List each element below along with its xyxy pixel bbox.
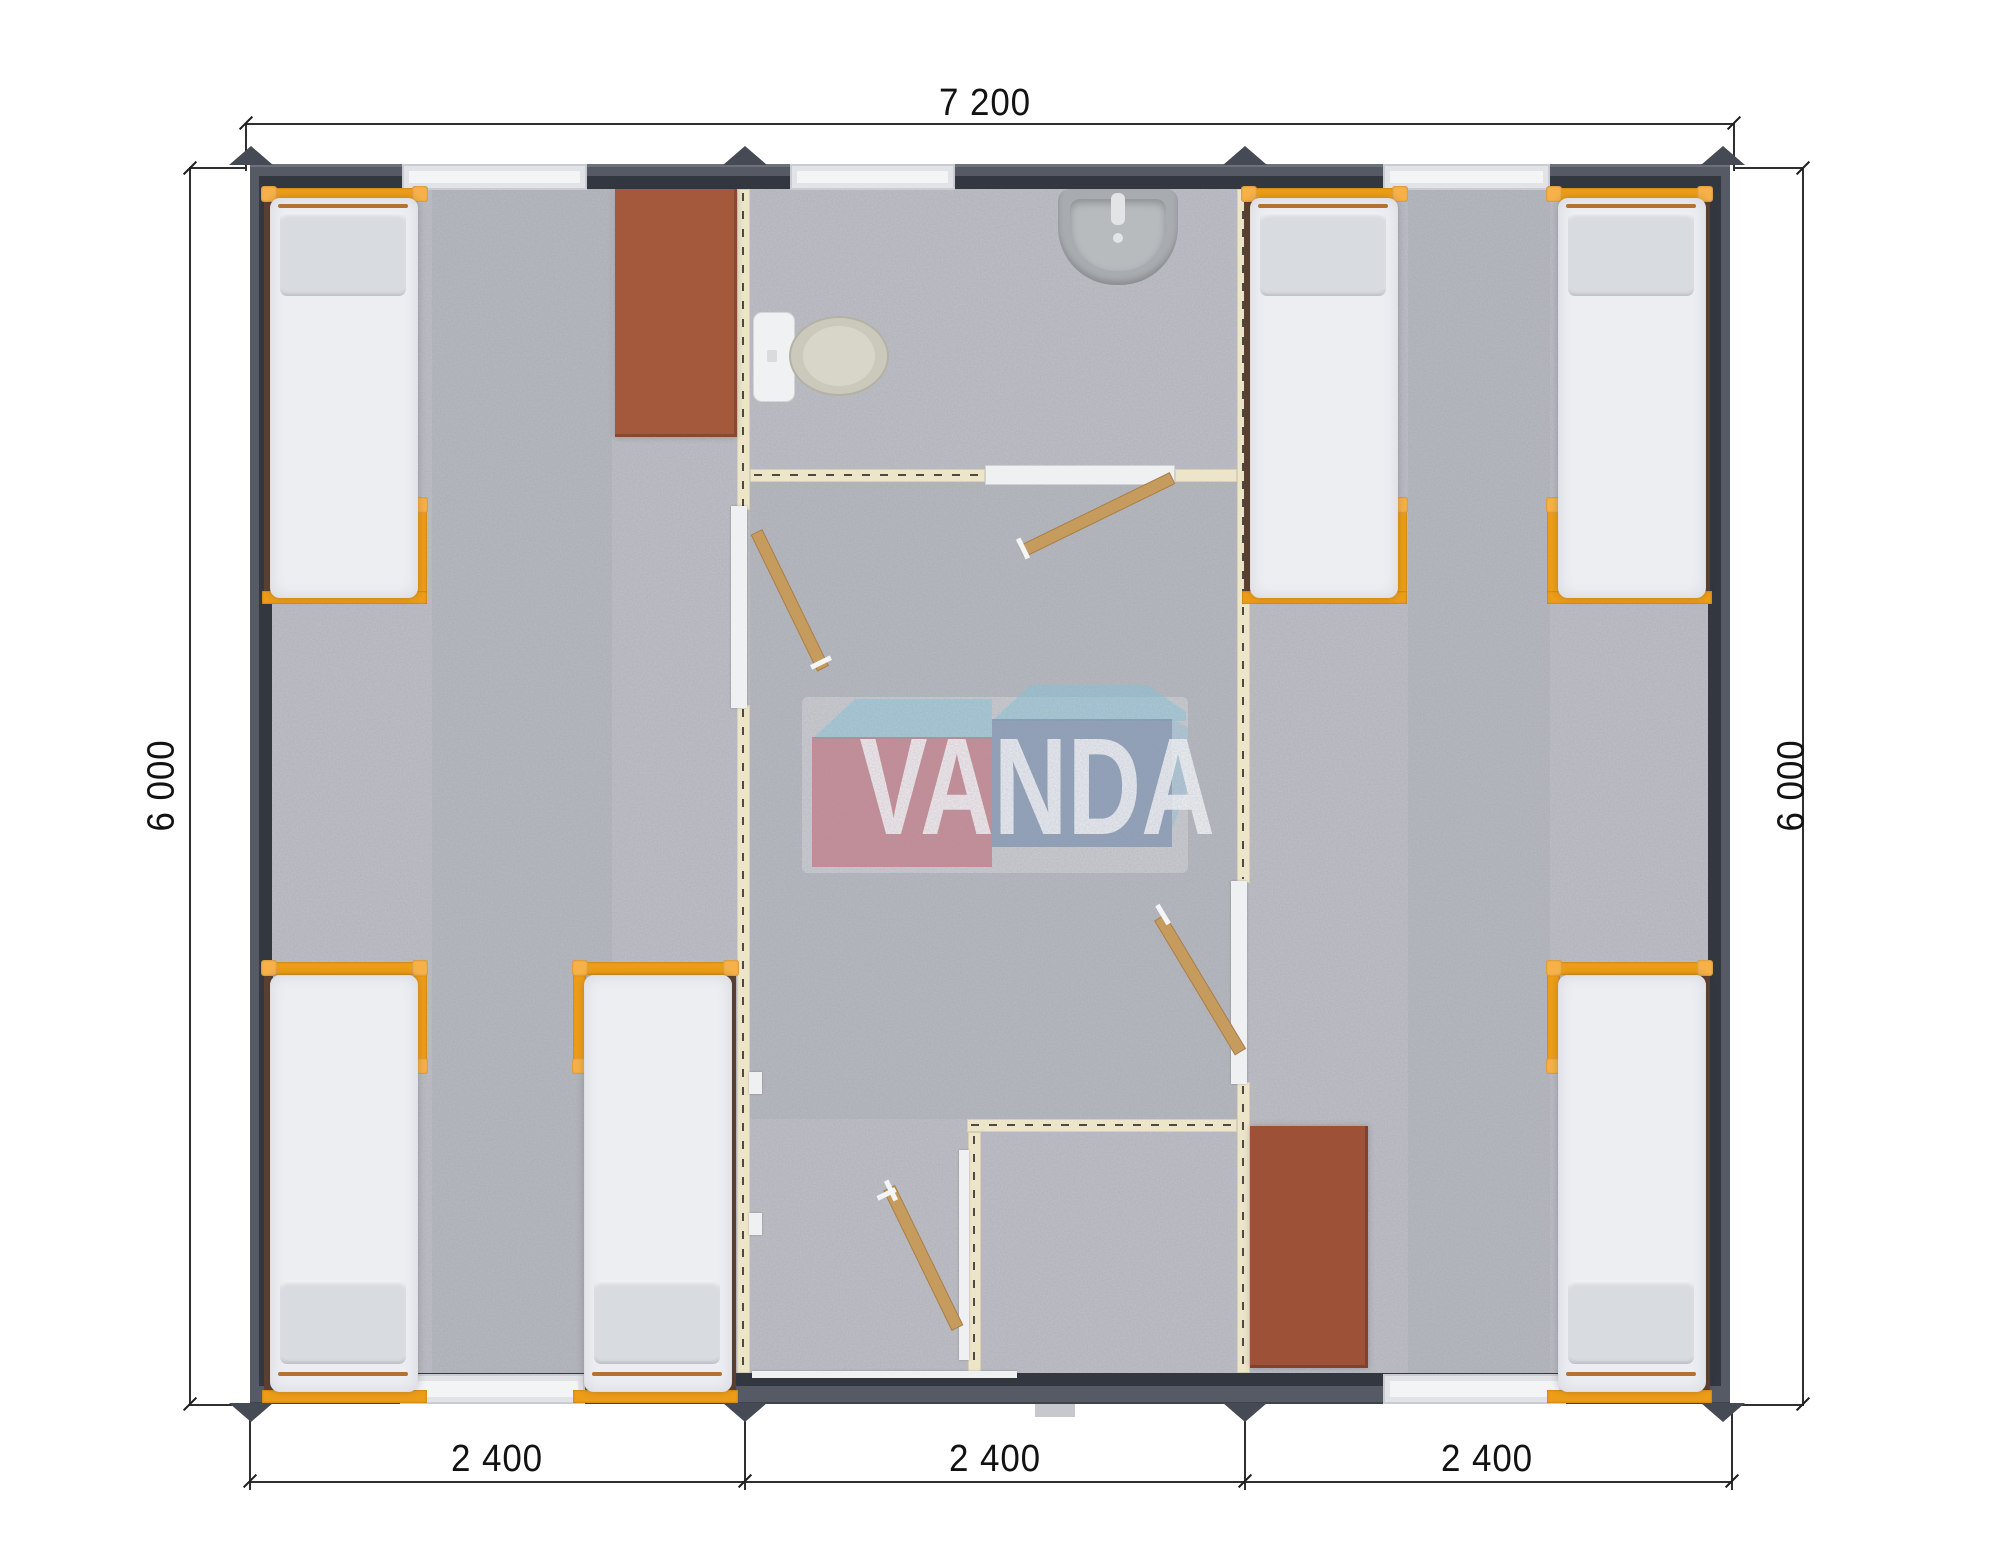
bed-pillow — [1568, 212, 1694, 296]
bed-headboard-edge — [278, 1372, 408, 1376]
dimension-bottom-label-2: 2 400 — [903, 1438, 1087, 1481]
bed-pillow — [280, 1280, 406, 1364]
post-cap — [229, 146, 273, 165]
bed-headboard-edge — [1566, 1372, 1696, 1376]
bed-pillow — [1260, 212, 1386, 296]
window-bottom-left-room — [400, 1374, 585, 1404]
toilet-flush-button — [767, 350, 777, 362]
toilet — [753, 310, 893, 402]
vestibule-door-open-leaf — [959, 1150, 969, 1360]
partition-fitting-tab — [749, 1213, 762, 1235]
bed-pillow — [280, 212, 406, 296]
bed-pillow — [1568, 1280, 1694, 1364]
vestibule-wall-dash-line — [973, 1136, 975, 1369]
bed-frame-corner — [261, 960, 277, 976]
post-cap — [1223, 1403, 1267, 1422]
window-top-left-room — [402, 164, 587, 190]
bed-5 — [1547, 188, 1712, 604]
bed-1 — [262, 188, 427, 604]
partition-dash-line — [742, 193, 744, 506]
window-top-bathroom — [790, 164, 955, 190]
dimension-line-bottom — [249, 1481, 1733, 1483]
bed-frame-rail — [262, 962, 427, 975]
bed-frame-corner — [572, 960, 588, 976]
post-cap — [1701, 1403, 1745, 1422]
floor-speckle-texture — [272, 189, 1708, 1373]
window-bottom-right-room — [1383, 1374, 1566, 1404]
bed-frame-corner — [1546, 186, 1562, 202]
sink-drain — [1113, 233, 1123, 243]
bed-headboard-edge — [1566, 204, 1696, 208]
bed-frame-rail — [573, 962, 738, 975]
dimension-right-label: 6 000 — [1762, 700, 1822, 870]
extension-line-right-top — [1735, 167, 1804, 169]
sink-faucet — [1111, 193, 1125, 225]
post-cap — [1223, 146, 1267, 165]
desk-top-left — [615, 189, 737, 437]
post-cap — [1701, 146, 1745, 165]
sink — [1058, 189, 1178, 285]
bed-6 — [1547, 962, 1712, 1403]
bed-frame-rail — [1547, 962, 1712, 975]
desk-bottom-right — [1250, 1126, 1368, 1368]
left-room-door-open-leaf — [731, 506, 747, 708]
floor-plan-canvas: 7 200 6 000 6 000 2 400 2 400 2 400 VAND… — [0, 0, 2000, 1566]
bed-headboard-edge — [278, 204, 408, 208]
bed-frame-corner — [1546, 960, 1562, 976]
post-cap — [723, 146, 767, 165]
bed-headboard-edge — [592, 1372, 722, 1376]
entry-inner-sill — [752, 1371, 1017, 1378]
dimension-bottom-label-1: 2 400 — [405, 1438, 589, 1481]
dimension-line-top — [245, 123, 1735, 125]
partition-fitting-tab — [749, 1072, 762, 1094]
bathroom-wall-dash-line — [754, 474, 981, 476]
toilet-seat — [803, 326, 875, 386]
bathroom-wall-right — [1175, 469, 1237, 482]
bed-pillow — [594, 1280, 720, 1364]
dimension-right-text: 6 000 — [1771, 739, 1814, 831]
extension-line-left-top — [189, 167, 247, 169]
post-cap — [229, 1403, 273, 1422]
partition-dash-line — [742, 709, 744, 1369]
bed-4 — [1242, 188, 1407, 604]
vestibule-wall-dash-line — [971, 1124, 1233, 1126]
bed-frame-corner — [412, 960, 428, 976]
bed-3 — [573, 962, 738, 1403]
dimension-bottom-label-3: 2 400 — [1395, 1438, 1579, 1481]
dimension-top-label: 7 200 — [893, 82, 1077, 125]
bed-2 — [262, 962, 427, 1403]
bed-frame-corner — [723, 960, 739, 976]
window-top-right-room — [1383, 164, 1550, 190]
dimension-left-label: 6 000 — [132, 700, 192, 870]
bed-frame-corner — [1697, 960, 1713, 976]
bed-headboard-edge — [1258, 204, 1388, 208]
partition-dash-line — [1242, 1086, 1244, 1369]
dimension-left-text: 6 000 — [141, 739, 184, 831]
entry-threshold-step — [1035, 1404, 1075, 1417]
post-cap — [723, 1403, 767, 1422]
